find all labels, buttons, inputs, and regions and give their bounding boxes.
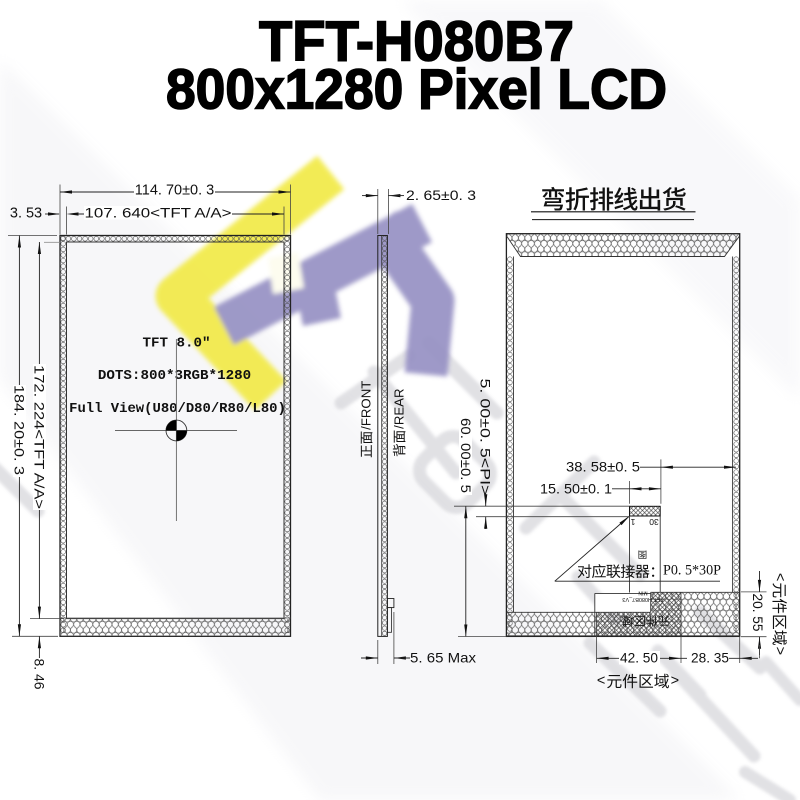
svg-text:20. 55: 20. 55 <box>750 594 766 632</box>
svg-text:30: 30 <box>649 517 659 527</box>
svg-text:/REAR: /REAR <box>392 388 407 428</box>
svg-text:2. 65±0. 3: 2. 65±0. 3 <box>406 187 476 203</box>
svg-text:114. 70±0. 3: 114. 70±0. 3 <box>135 182 214 198</box>
svg-text:60. 00±0. 5: 60. 00±0. 5 <box>458 418 474 493</box>
svg-text:800x1280 Pixel LCD: 800x1280 Pixel LCD <box>166 58 667 122</box>
svg-text:>: > <box>671 673 679 689</box>
svg-text:TFT-H080B7_V3: TFT-H080B7_V3 <box>622 596 663 602</box>
svg-text:P0. 5*30P: P0. 5*30P <box>663 563 721 579</box>
svg-text:3. 53: 3. 53 <box>10 206 42 222</box>
svg-text:<: < <box>772 573 788 581</box>
svg-text:172. 224<TFT A/A>: 172. 224<TFT A/A> <box>31 365 47 509</box>
svg-text:38. 58±0. 5: 38. 58±0. 5 <box>566 459 640 475</box>
svg-text:Full View(U80/D80/R80/L80): Full View(U80/D80/R80/L80) <box>69 401 286 417</box>
svg-text:DOTS:800*3RGB*1280: DOTS:800*3RGB*1280 <box>98 368 251 384</box>
svg-text:15. 50±0. 1: 15. 50±0. 1 <box>540 480 612 496</box>
svg-text:/FRONT: /FRONT <box>359 381 374 430</box>
svg-text:5. 00±0. 5<PI>: 5. 00±0. 5<PI> <box>478 379 494 496</box>
svg-text:107. 640<TFT A/A>: 107. 640<TFT A/A> <box>85 204 232 220</box>
svg-text:<: < <box>597 673 605 689</box>
svg-text:28. 35: 28. 35 <box>691 650 729 666</box>
svg-text:42. 50: 42. 50 <box>620 650 658 666</box>
svg-text:8. 46: 8. 46 <box>31 659 47 690</box>
svg-text:MIN: MIN <box>638 590 648 596</box>
svg-text:>: > <box>772 647 788 655</box>
svg-text:5. 65 Max: 5. 65 Max <box>410 649 476 665</box>
svg-text:1: 1 <box>630 517 635 527</box>
svg-text:184. 20±0. 3: 184. 20±0. 3 <box>11 385 27 475</box>
